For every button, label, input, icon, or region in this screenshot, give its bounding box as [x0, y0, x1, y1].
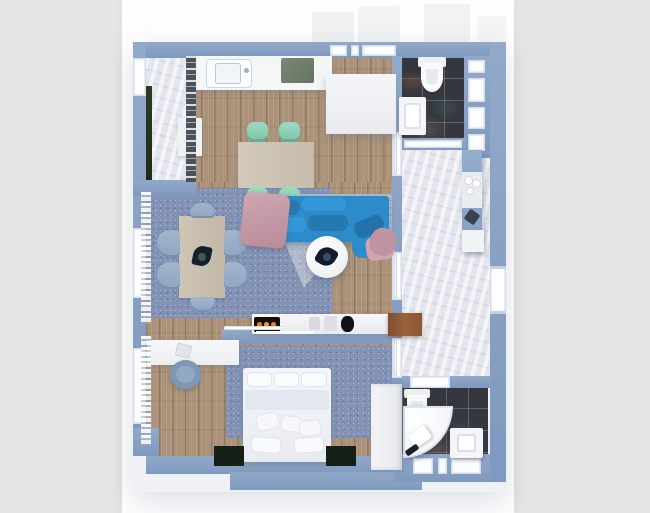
bottom-niche-2	[438, 458, 447, 474]
bed-cushion-5	[293, 436, 324, 454]
console-wood-section	[388, 313, 422, 336]
wall-niche-4	[468, 134, 485, 151]
wall-right	[490, 42, 506, 482]
dining-chair-left-1	[157, 230, 180, 257]
bed-pillow-3	[301, 372, 327, 387]
washbasin-top-bowl	[404, 103, 421, 129]
ghost-exterior-1	[312, 12, 354, 44]
window-top-1	[330, 45, 347, 56]
hall-cabinet	[462, 230, 484, 252]
wall-niche-2	[468, 78, 485, 102]
entrance-door-jamb-top	[490, 266, 506, 269]
ghost-exterior-2	[358, 6, 400, 46]
cooktop	[281, 58, 314, 83]
bed-duvet-fold	[245, 390, 329, 410]
nightstand-left	[214, 446, 244, 466]
kitchen-chair-1	[247, 122, 268, 142]
door-living-hallway-leaf	[394, 254, 397, 298]
hall-plate-3	[466, 187, 474, 195]
floor-plan	[0, 0, 650, 513]
door-bathroom-bottom	[410, 376, 450, 388]
ghost-exterior-4	[478, 16, 506, 42]
hall-plate-2	[472, 179, 481, 188]
door-leaf-living-bedroom	[224, 326, 284, 330]
floor-plan-stage	[0, 0, 650, 513]
wardrobe	[371, 384, 402, 470]
console-object-2	[324, 316, 337, 331]
dining-chair-left-2	[157, 262, 180, 289]
kitchen-table	[238, 142, 314, 188]
console-tv	[341, 316, 354, 332]
wall-niche-1	[468, 60, 485, 73]
door-kitchen-hallway-leaf	[394, 134, 397, 174]
entrance-door-jamb-bottom	[490, 311, 506, 314]
curtain-bedroom	[141, 336, 151, 446]
dining-bowl-center	[198, 253, 206, 261]
bed-pillow-1	[247, 372, 272, 387]
desk-chair-seat	[176, 366, 195, 383]
plant-box	[146, 86, 152, 180]
curtain-kitchen-divider	[186, 56, 196, 182]
kitchen-chair-2	[279, 122, 300, 142]
console-shelf-highlight	[256, 331, 314, 334]
wall-niche-3	[468, 107, 485, 129]
door-bedroom-hallway-leaf	[394, 340, 397, 376]
washbasin-bottom-bowl	[457, 434, 476, 452]
toilet-top-seat	[426, 69, 438, 85]
laptop	[175, 343, 192, 359]
console-object-1	[309, 317, 320, 330]
dining-chair-top	[190, 203, 215, 218]
entrance-door	[490, 266, 506, 314]
bed-cushion-4	[250, 436, 281, 454]
door-bathroom-top	[404, 140, 462, 148]
kitchen-faucet	[244, 68, 249, 73]
kitchen-island	[326, 74, 396, 134]
throw-blanket-left	[239, 191, 290, 250]
bed-cushion-3	[298, 419, 322, 438]
window-top-2	[351, 45, 359, 56]
kitchen-sink-basin	[215, 63, 241, 84]
window-left-balcony	[133, 58, 146, 96]
sofa-cushion-4	[308, 215, 348, 231]
window-top-3	[362, 45, 396, 56]
nightstand-right	[326, 446, 356, 466]
sofa-cushion-2	[302, 197, 346, 211]
bottom-niche-1	[413, 458, 433, 474]
coffee-bowl-inner	[323, 253, 331, 261]
bed-pillow-2	[274, 372, 299, 387]
ghost-exterior-3	[424, 4, 470, 42]
bottom-niche-3	[451, 458, 481, 474]
curtain-living	[141, 192, 151, 324]
